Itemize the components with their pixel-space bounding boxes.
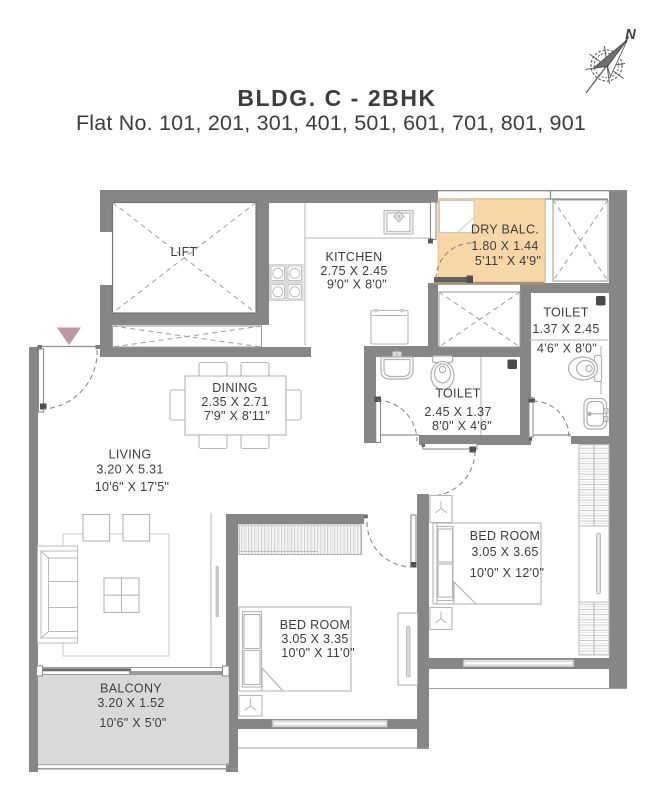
svg-text:BED ROOM: BED ROOM <box>470 529 540 543</box>
svg-text:N: N <box>625 27 636 43</box>
svg-text:2.45 X 1.37: 2.45 X 1.37 <box>424 405 491 419</box>
svg-text:BED ROOM: BED ROOM <box>280 618 350 632</box>
svg-text:3.05 X 3.35: 3.05 X 3.35 <box>281 632 348 646</box>
svg-text:LIFT: LIFT <box>171 245 198 259</box>
svg-text:BALCONY: BALCONY <box>100 682 162 696</box>
svg-text:8'0" X 4'6": 8'0" X 4'6" <box>432 419 492 433</box>
svg-text:10'6" X 17'5": 10'6" X 17'5" <box>95 480 170 494</box>
svg-text:1.37 X 2.45: 1.37 X 2.45 <box>532 322 599 336</box>
svg-text:2.75 X 2.45: 2.75 X 2.45 <box>320 264 387 278</box>
svg-text:LIVING: LIVING <box>109 448 152 462</box>
svg-text:1.80 X 1.44: 1.80 X 1.44 <box>471 239 538 253</box>
svg-text:9'0" X 8'0": 9'0" X 8'0" <box>327 278 387 292</box>
svg-text:10'0" X 12'0": 10'0" X 12'0" <box>470 566 545 580</box>
svg-text:5'11" X 4'9": 5'11" X 4'9" <box>475 254 541 268</box>
svg-text:TOILET: TOILET <box>435 387 480 401</box>
svg-text:DINING: DINING <box>212 381 258 395</box>
svg-text:4'6" X 8'0": 4'6" X 8'0" <box>537 342 597 356</box>
svg-text:2.35 X 2.71: 2.35 X 2.71 <box>201 395 268 409</box>
svg-text:KITCHEN: KITCHEN <box>326 250 383 264</box>
svg-text:3.05 X 3.65: 3.05 X 3.65 <box>471 545 538 559</box>
svg-text:3.20 X 1.52: 3.20 X 1.52 <box>97 696 164 710</box>
svg-text:10'6" X 5'0": 10'6" X 5'0" <box>99 716 166 730</box>
svg-text:DRY BALC.: DRY BALC. <box>471 223 539 237</box>
svg-text:Flat No. 101, 201, 301, 401, 5: Flat No. 101, 201, 301, 401, 501, 601, 7… <box>76 111 586 135</box>
svg-text:3.20 X 5.31: 3.20 X 5.31 <box>96 463 163 477</box>
svg-text:TOILET: TOILET <box>543 306 588 320</box>
svg-text:7'9" X 8'11": 7'9" X 8'11" <box>204 409 270 423</box>
svg-text:BLDG. C - 2BHK: BLDG. C - 2BHK <box>237 85 436 111</box>
svg-text:10'0" X 11'0": 10'0" X 11'0" <box>281 646 355 660</box>
